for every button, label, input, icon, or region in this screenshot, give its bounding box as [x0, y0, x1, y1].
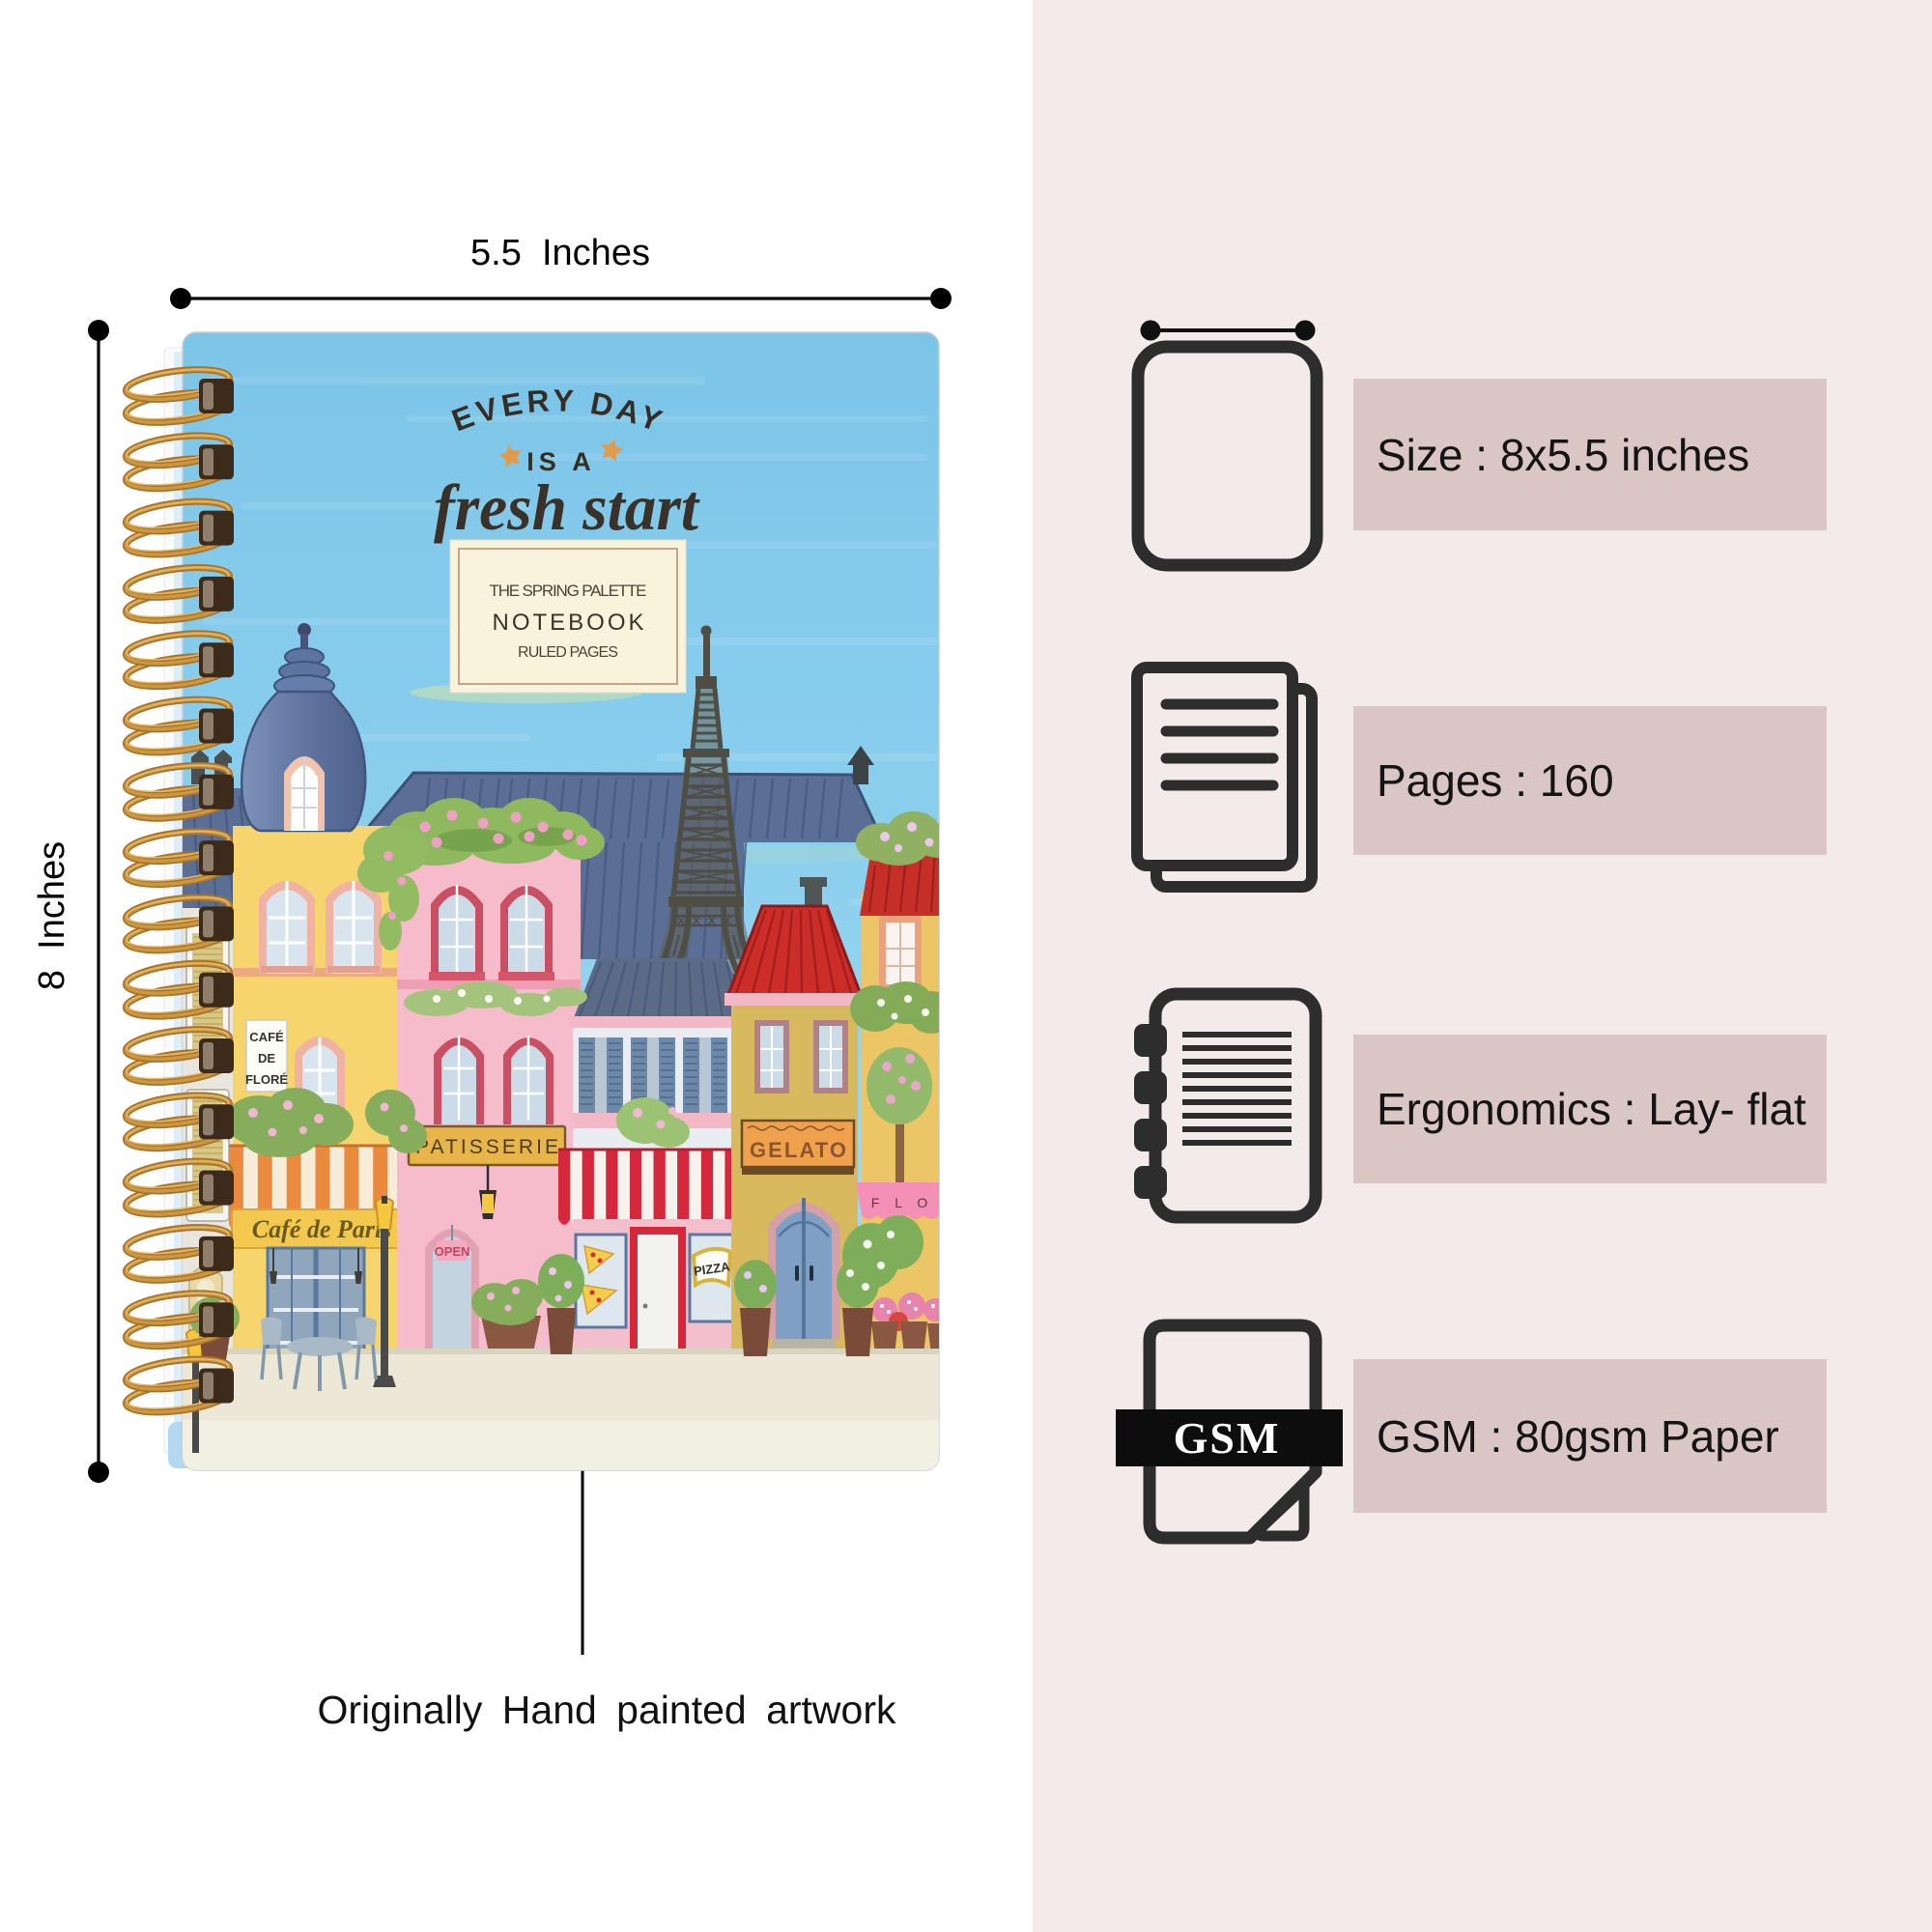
svg-text:DE: DE [258, 1051, 275, 1065]
svg-text:OPEN: OPEN [435, 1244, 470, 1259]
svg-text:GSM: GSM [1174, 1413, 1281, 1463]
svg-text:fresh start: fresh start [434, 470, 700, 544]
svg-text:Café de Paris: Café de Paris [252, 1215, 391, 1243]
svg-text:RULED PAGES: RULED PAGES [518, 644, 618, 661]
svg-text:F L O: F L O [871, 1195, 934, 1210]
svg-text:NOTEBOOK: NOTEBOOK [493, 610, 644, 636]
svg-text:THE SPRING PALETTE: THE SPRING PALETTE [490, 582, 647, 600]
svg-text:CAFÉ: CAFÉ [249, 1030, 284, 1044]
svg-text:FLORÉ: FLORÉ [245, 1072, 288, 1087]
svg-text:PATISSERIE: PATISSERIE [415, 1136, 558, 1158]
